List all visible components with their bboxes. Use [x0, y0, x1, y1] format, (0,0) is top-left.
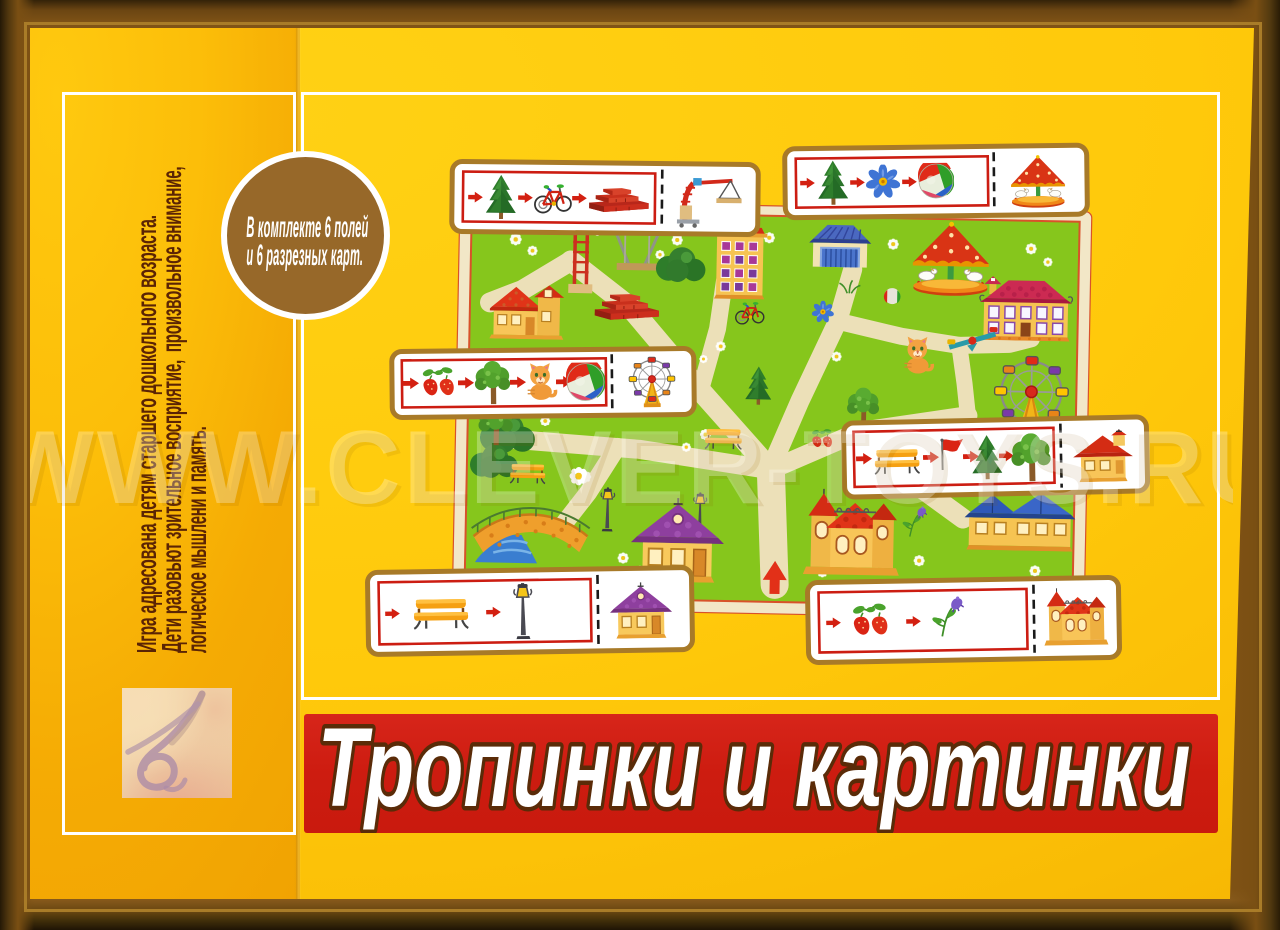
svg-text:Тропинки и картинки: Тропинки и картинки — [318, 714, 1191, 830]
